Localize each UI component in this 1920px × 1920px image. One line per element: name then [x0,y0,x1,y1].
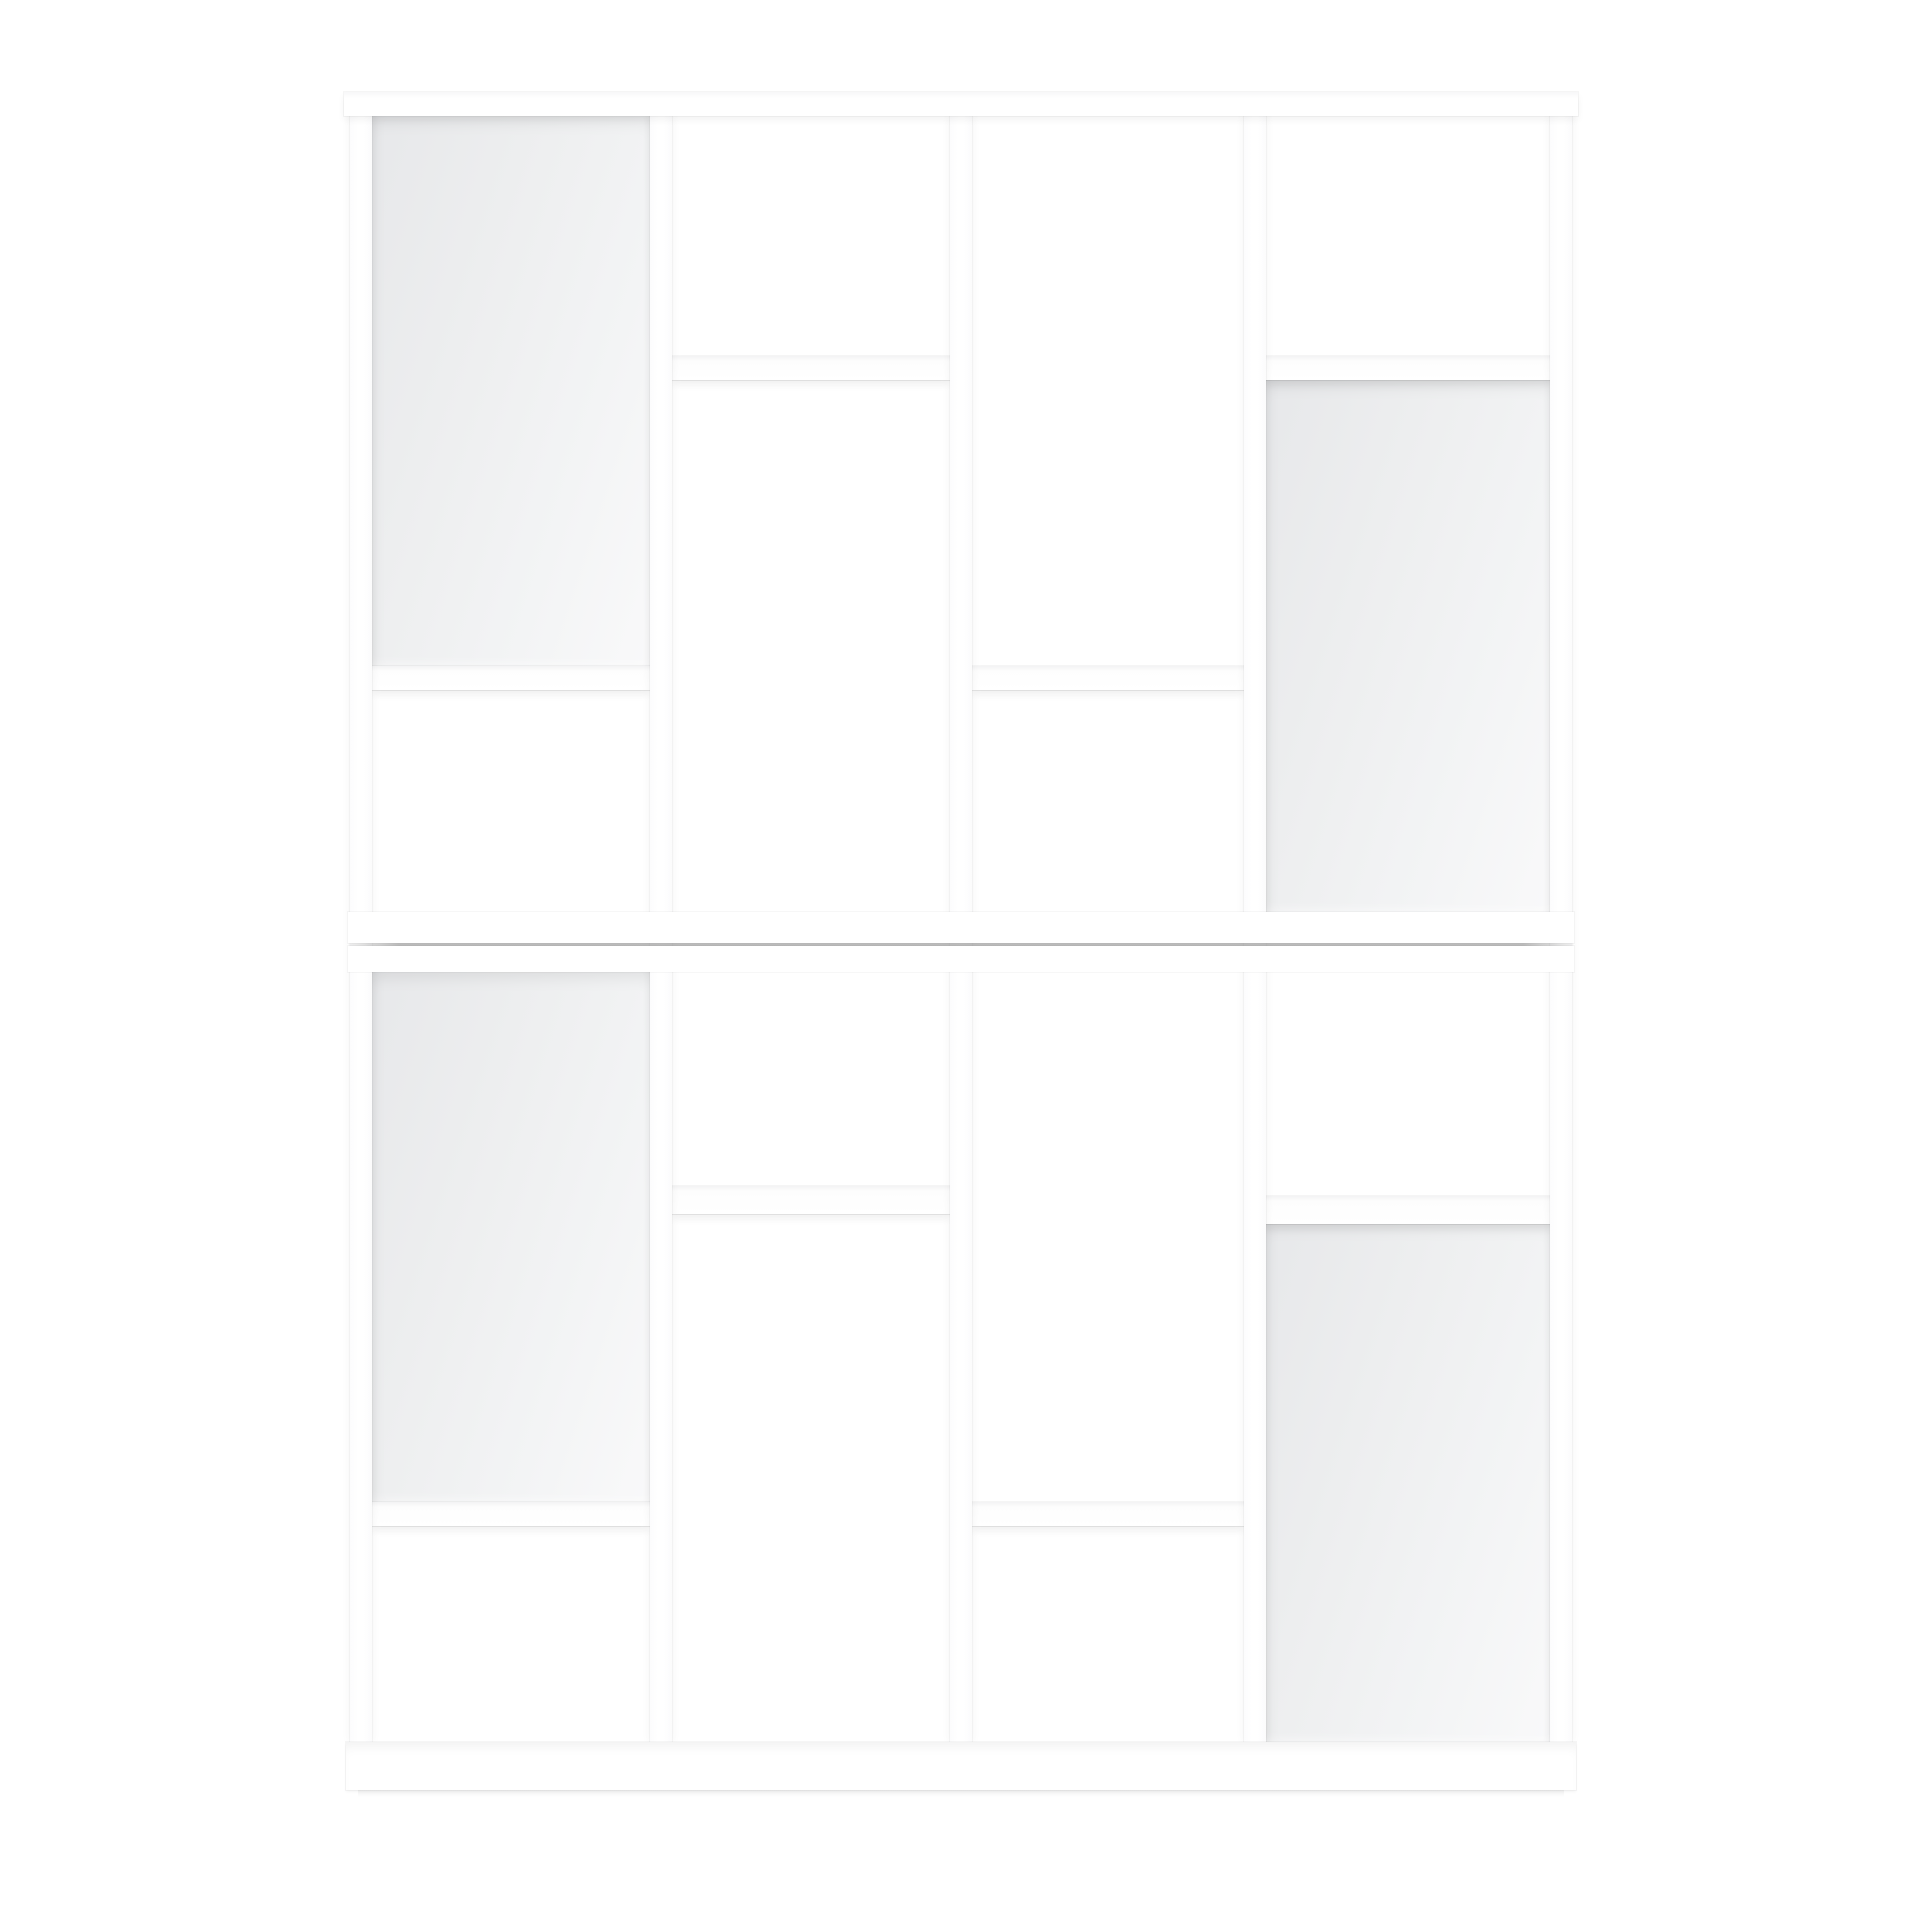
back-panel-bottom-col1 [372,972,650,1502]
shelf-top-col3 [972,666,1244,690]
shelf-top-col4 [1266,356,1550,380]
back-panel-bottom-col4 [1266,1222,1550,1742]
mid-rail-lower [348,946,1574,972]
back-panel-top-col4 [1266,380,1550,912]
mid-rail-upper [348,912,1574,943]
shelf-bottom-col2 [672,1186,950,1214]
shelf-top-col2 [672,356,950,380]
back-panel-top-col1 [372,116,650,666]
shelf-top-col1 [372,666,650,690]
shelf-bottom-col1 [372,1502,650,1526]
shelf-bottom-col3 [972,1502,1244,1526]
shelf-bottom-col4 [1266,1196,1550,1224]
floor-shadow [358,1790,1564,1797]
plinth-board [346,1742,1576,1790]
top-board [344,92,1578,116]
product-photo-canvas [0,0,1920,1920]
